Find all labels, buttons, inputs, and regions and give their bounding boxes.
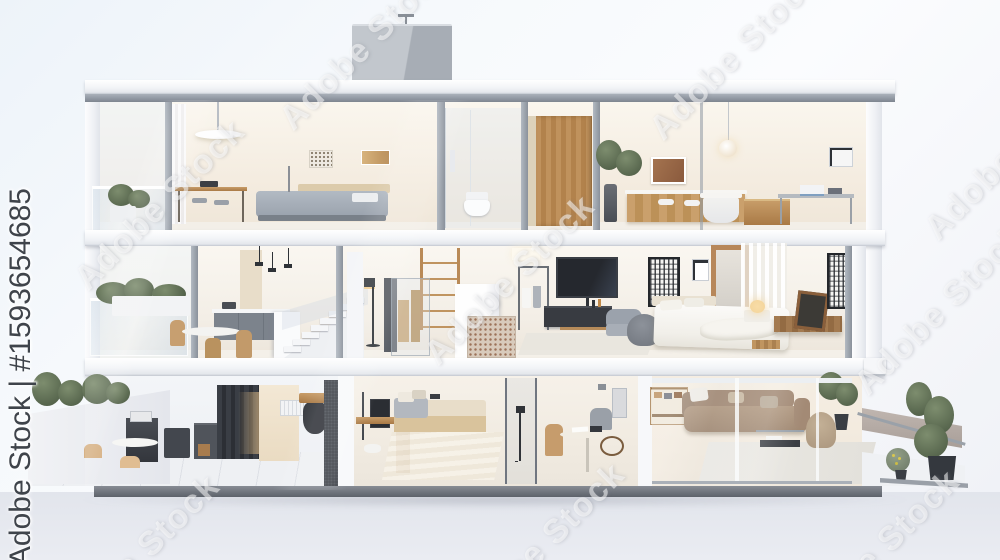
warm-glow xyxy=(238,392,259,454)
wood-crate xyxy=(198,444,210,456)
lit-doorway xyxy=(259,385,299,461)
chair-tan xyxy=(545,424,563,456)
outdoor-table xyxy=(112,438,158,447)
sliding-glass-doors xyxy=(652,378,852,489)
chair-wire xyxy=(600,436,624,456)
wall-divider xyxy=(338,376,354,486)
table-pedestal xyxy=(586,438,589,472)
outdoor-chair xyxy=(120,456,140,468)
terrace-greenery xyxy=(58,380,84,406)
watermark-side: Adobe Stock | #1593654685 xyxy=(4,188,38,560)
divider-lamp xyxy=(516,406,525,413)
laptop xyxy=(590,426,602,432)
small-plant xyxy=(886,448,910,472)
dark-column xyxy=(324,380,338,486)
striped-rug xyxy=(382,432,504,480)
outdoor-chair xyxy=(84,444,102,458)
daybed-base xyxy=(394,416,486,432)
yellow-flowers xyxy=(892,454,895,457)
glass-door-frame xyxy=(735,378,739,484)
divider-lamp-stem xyxy=(519,413,521,461)
scene-house-cross-section: Adobe Stock | #1593654685 Adobe Stock Ad… xyxy=(0,0,1000,560)
coat-pole xyxy=(362,392,364,440)
glass-door-track xyxy=(652,481,852,484)
stool-white xyxy=(364,444,381,453)
book-dark xyxy=(430,394,440,399)
daybed-pillow xyxy=(412,390,426,399)
wall-hook xyxy=(598,384,606,390)
glass-door-frame xyxy=(816,378,819,484)
glass-divider xyxy=(505,378,537,484)
dark-box xyxy=(164,428,190,458)
wall-mirror xyxy=(612,388,627,418)
leaning-frame xyxy=(130,411,152,422)
terrace-greenery xyxy=(106,382,130,404)
terrace-plant xyxy=(914,424,948,458)
